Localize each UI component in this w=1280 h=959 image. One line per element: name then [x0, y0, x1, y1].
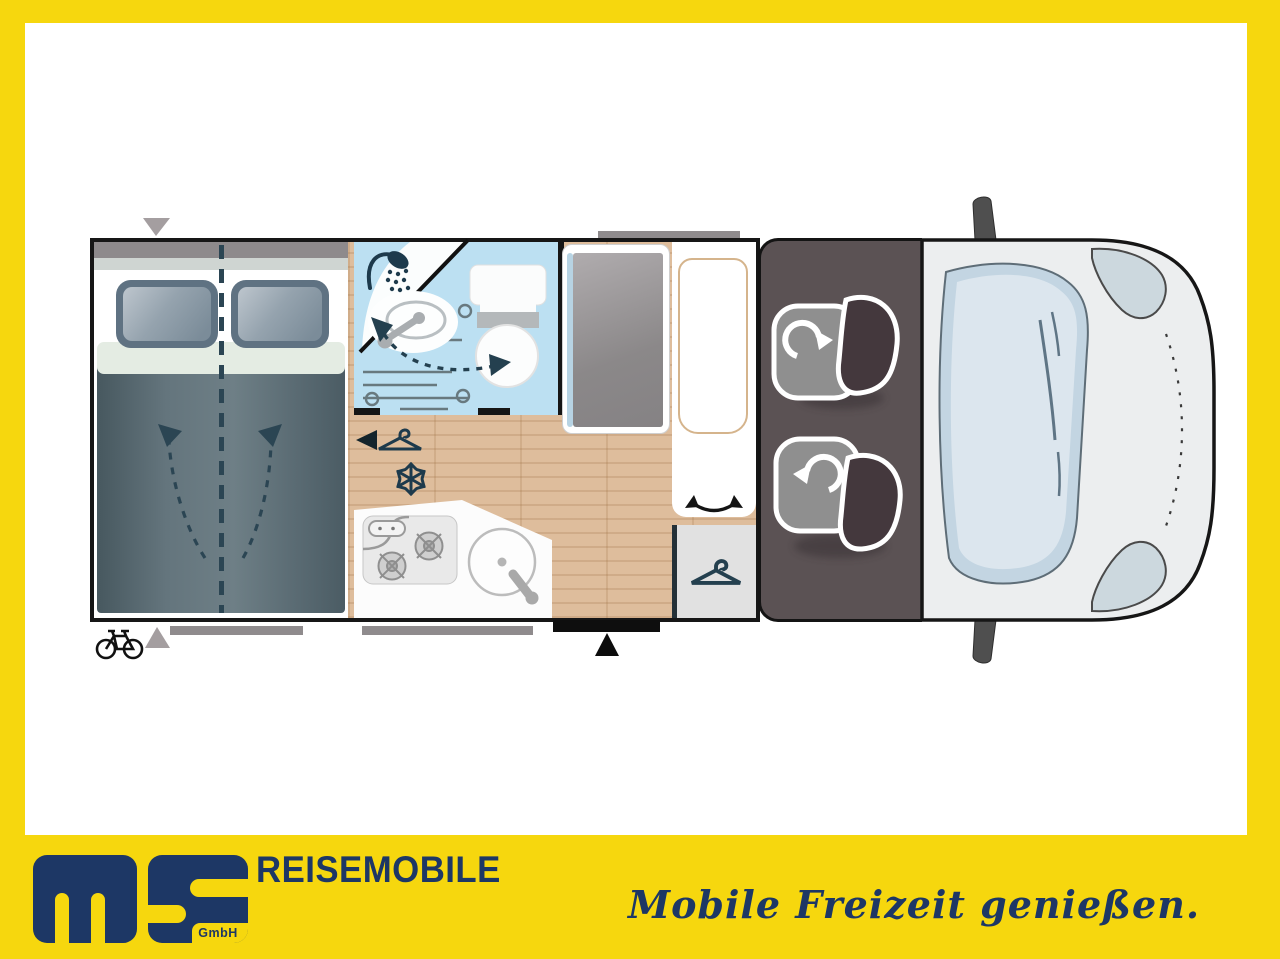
entry-door	[553, 620, 660, 632]
van-cab-exterior	[922, 197, 1214, 663]
cab-interior	[758, 238, 922, 622]
brand-tagline: Mobile Freizeit genießen.	[628, 882, 1200, 927]
skirt-rail-mid	[362, 626, 533, 635]
frame-top	[0, 0, 1280, 23]
pillow-right	[231, 280, 329, 348]
mirror-bottom-icon	[973, 620, 996, 663]
seat-swivel-zone	[672, 438, 756, 517]
fridge-cabinet	[562, 244, 670, 434]
wardrobe	[672, 525, 756, 618]
bed-centerline	[219, 245, 224, 613]
windshield	[940, 264, 1088, 584]
pillow-left	[116, 280, 218, 348]
mirror-top-icon	[973, 197, 996, 240]
logo-m-notch	[55, 893, 69, 943]
brand-wordmark: REISEMOBILE	[256, 849, 501, 891]
wiper-streak	[1040, 320, 1055, 440]
motorhome-floorplan-flyer: GmbH REISEMOBILE Mobile Freizeit genieße…	[0, 0, 1280, 959]
hood-dashed-line	[1166, 334, 1182, 526]
entry-door-marker	[595, 633, 619, 656]
frame-left	[0, 0, 25, 959]
bathroom-wall-stub-left	[354, 408, 380, 415]
logo-m-tile	[33, 855, 137, 943]
side-bench-outline	[678, 258, 748, 434]
logo-m-notch	[91, 893, 105, 943]
frame-right	[1247, 0, 1280, 959]
logo-gmbh-label: GmbH	[192, 923, 244, 943]
skirt-rail-left	[170, 626, 303, 635]
logo-s-notch	[190, 879, 248, 897]
bathroom	[354, 242, 558, 415]
bike-rack-icon	[97, 631, 142, 658]
fridge-top-panel	[573, 253, 663, 427]
windshield-inner	[951, 275, 1077, 569]
headlight-bottom	[1092, 542, 1166, 611]
headlight-top	[1092, 249, 1166, 318]
logo-s-notch	[148, 905, 186, 923]
van-body	[922, 240, 1214, 620]
marker-triangle-bottom	[145, 627, 170, 648]
bathroom-wall-stub-right	[478, 408, 510, 415]
marker-triangle-top	[143, 218, 170, 236]
